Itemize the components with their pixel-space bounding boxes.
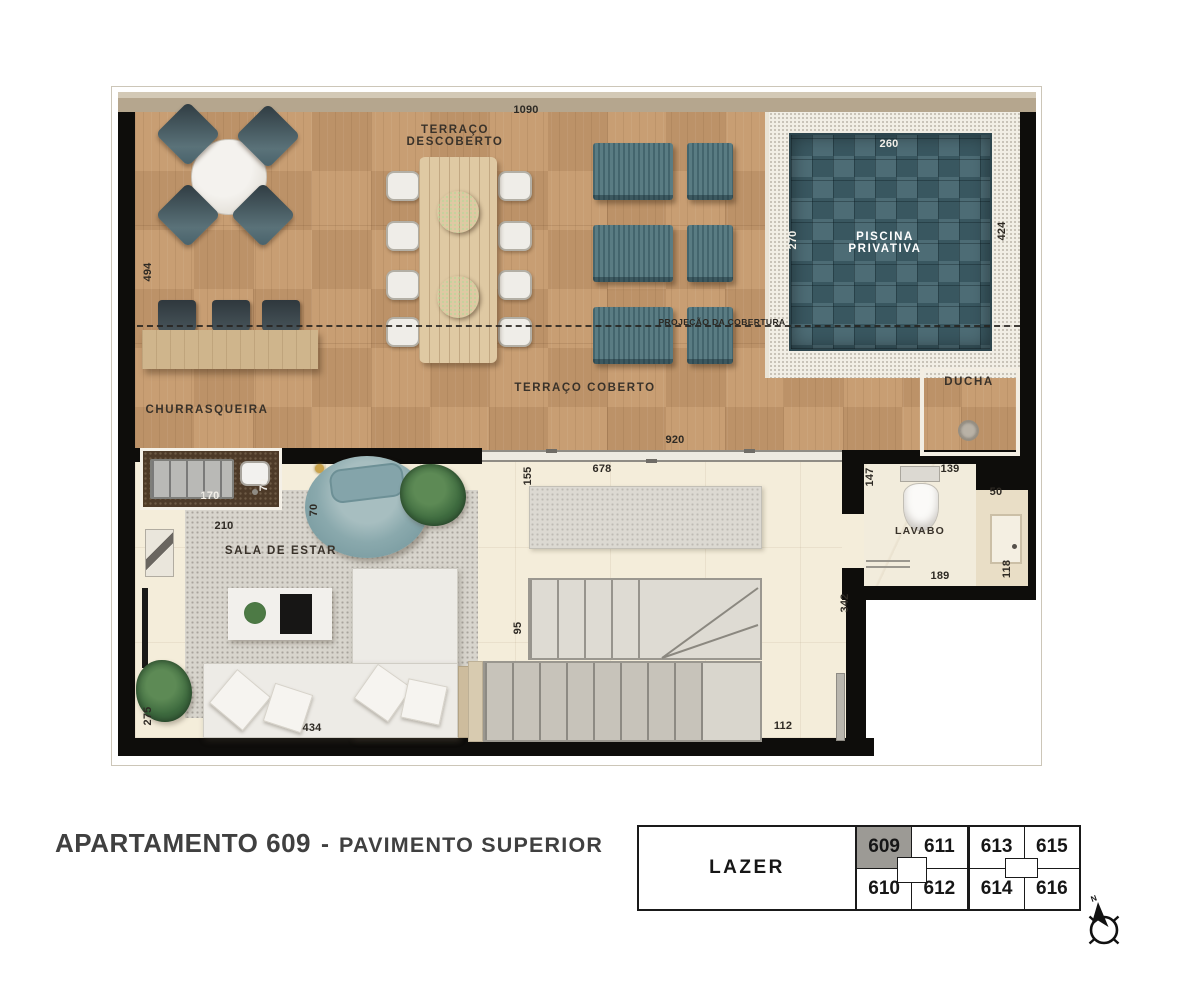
dining-table	[419, 157, 497, 363]
lavabo-label: LAVABO	[895, 525, 945, 537]
terrace-open-label-line2: DESCOBERTO	[407, 136, 504, 148]
pool-label: PISCINA PRIVATIVA	[848, 231, 921, 255]
toilet-tank	[900, 466, 940, 482]
keyplan-core-notch	[897, 857, 927, 883]
dining-chair	[386, 317, 420, 347]
sun-lounger	[593, 307, 673, 364]
stair-winder-lines	[530, 580, 764, 662]
dim-pool-width: 260	[880, 138, 899, 150]
stairs-lower-flight	[483, 661, 762, 742]
keyplan: LAZER 609 611 613 615 610 612 614 616	[637, 825, 1081, 911]
shower-drain-icon	[958, 420, 979, 441]
small-plant-icon	[244, 602, 266, 624]
dim-door-width: 920	[666, 434, 685, 446]
bbq-label: CHURRASQUEIRA	[145, 404, 268, 416]
stairs-upper-flight	[528, 578, 762, 660]
terrace-open-label-line1: TERRAÇO	[407, 124, 504, 136]
dim-grill-depth: 70	[258, 479, 270, 492]
plan-title-dash: -	[321, 831, 329, 859]
dim-lavabo-width: 139	[941, 463, 960, 475]
dining-chair	[386, 221, 420, 251]
sun-lounger	[687, 225, 733, 282]
wall-console	[145, 529, 174, 577]
floor-plan-page: TERRAÇO DESCOBERTO PISCINA PRIVATIVA TER…	[0, 0, 1200, 1000]
dim-pool-depth: 270	[787, 231, 799, 250]
dining-chair	[498, 221, 532, 251]
sun-lounger	[687, 143, 733, 200]
dim-living-width: 210	[215, 520, 234, 532]
stair-treads	[485, 663, 703, 740]
dim-living-height: 275	[142, 707, 154, 726]
dim-hall-height: 342	[839, 594, 851, 613]
left-wall	[118, 112, 135, 756]
terrace-covered-label: TERRAÇO COBERTO	[514, 382, 655, 394]
keyplan-grid: 609 611 613 615 610 612 614 616	[857, 827, 1079, 909]
dining-chair	[498, 270, 532, 300]
keyplan-core-notch	[1005, 858, 1038, 878]
door-handle-icon	[646, 459, 657, 463]
compass-icon: N	[1082, 894, 1128, 956]
toilet-bowl	[903, 483, 939, 531]
dining-chair	[498, 317, 532, 347]
dim-pool-deck-height: 424	[996, 222, 1008, 241]
dim-lavabo-height: 147	[864, 468, 876, 487]
compass-north-label: N	[1090, 894, 1099, 904]
keyplan-row-top: 609 611 613 615	[857, 827, 1079, 869]
basin-counter	[990, 514, 1022, 564]
shower-label: DUCHA	[944, 376, 994, 388]
door-handle-icon	[744, 449, 755, 453]
dim-stair-width: 95	[512, 622, 524, 635]
terrace-open-label: TERRAÇO DESCOBERTO	[407, 124, 504, 148]
grill-icon	[150, 459, 234, 499]
basin-faucet-icon	[1012, 544, 1017, 549]
bar-counter	[142, 330, 318, 369]
dim-sofa-width: 434	[303, 722, 322, 734]
dining-chair	[498, 171, 532, 201]
dim-sideboard-width: 678	[593, 463, 612, 475]
tv-panel	[142, 588, 148, 668]
hallway-right-wall	[846, 596, 866, 742]
stair-half-wall	[468, 661, 483, 742]
sun-lounger	[593, 143, 673, 200]
table-planter-icon	[437, 276, 479, 318]
hall-door-leaf	[836, 673, 845, 741]
dim-terrace-height: 494	[142, 263, 154, 282]
plan-title: APARTAMENTO 609 - PAVIMENTO SUPERIOR	[55, 828, 603, 859]
keyplan-row-bottom: 610 612 614 616	[857, 869, 1079, 910]
sun-lounger	[593, 225, 673, 282]
dim-armchair-depth: 70	[308, 504, 320, 517]
dim-lavabo-bottom: 189	[931, 570, 950, 582]
table-planter-icon	[437, 191, 479, 233]
dim-hall-width: 112	[774, 720, 792, 732]
lavabo-door-opening	[842, 514, 864, 568]
top-parapet-wall	[118, 92, 1036, 114]
pool-label-line1: PISCINA	[848, 231, 921, 243]
plan-title-main: APARTAMENTO 609	[55, 828, 311, 859]
coffee-table-tray	[280, 594, 312, 634]
sun-lounger	[687, 307, 733, 364]
dining-chair	[386, 171, 420, 201]
right-wall	[1020, 112, 1036, 462]
dim-basin-width: 50	[990, 486, 1003, 498]
dim-sideboard-depth: 155	[522, 467, 534, 486]
dim-grill-width: 170	[201, 490, 220, 502]
dim-terrace-width: 1090	[513, 104, 538, 116]
towel-bar-2	[866, 566, 910, 568]
dining-chair	[386, 270, 420, 300]
plant-icon	[400, 464, 466, 526]
keyplan-zone-label: LAZER	[639, 827, 857, 909]
sliding-glass-door	[482, 450, 842, 462]
towel-bar	[866, 560, 910, 562]
sideboard-bench	[529, 486, 762, 549]
living-room-label: SALA DE ESTAR	[225, 545, 337, 557]
coverage-projection-line	[137, 325, 1020, 327]
door-handle-icon	[546, 449, 557, 453]
dim-basin-height: 118	[1001, 560, 1013, 578]
plan-title-sub: PAVIMENTO SUPERIOR	[339, 833, 603, 858]
coverage-projection-label: PROJEÇÃO DA COBERTURA	[658, 317, 785, 327]
sofa-pillow	[400, 678, 447, 725]
pool-label-line2: PRIVATIVA	[848, 243, 921, 255]
